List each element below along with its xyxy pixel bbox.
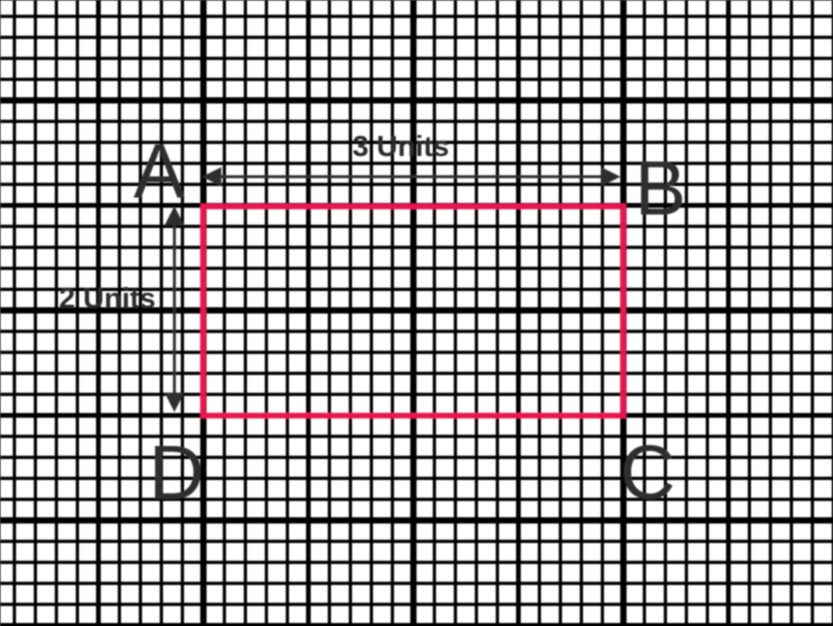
svg-text:A: A: [134, 129, 186, 215]
svg-text:C: C: [620, 430, 676, 516]
svg-text:3 Units: 3 Units: [353, 131, 450, 163]
svg-text:B: B: [635, 146, 686, 232]
svg-text:2 Units: 2 Units: [59, 283, 156, 315]
svg-text:D: D: [149, 430, 205, 516]
